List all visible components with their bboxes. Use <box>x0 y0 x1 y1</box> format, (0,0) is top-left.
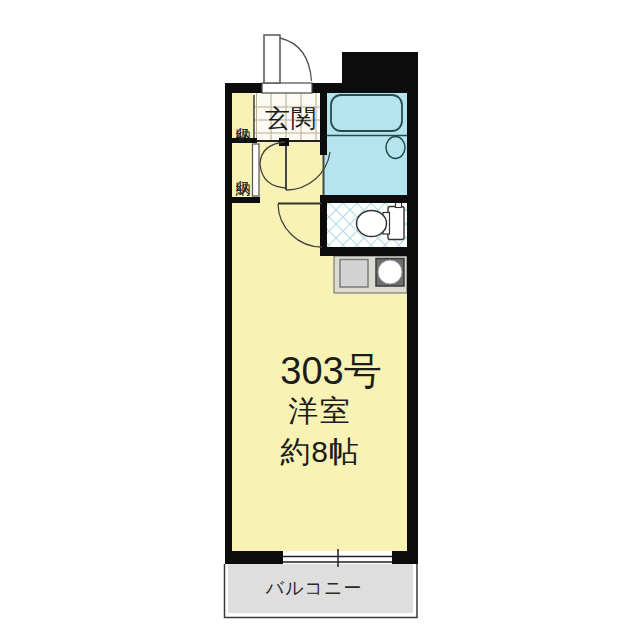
wall-bottom-right <box>392 551 418 564</box>
entrance-threshold <box>262 83 312 93</box>
floorplan-drawing <box>0 0 640 640</box>
wall-bottom-left <box>225 551 283 564</box>
wall-toilet-bottom <box>320 247 407 256</box>
entrance-label: 玄関 <box>265 106 317 131</box>
storage-lower-door-panel <box>253 144 260 196</box>
entrance-door-leaf <box>264 35 280 83</box>
wall-block-top-right <box>342 52 418 93</box>
toilet-room <box>322 201 407 249</box>
room-area-label: 約8帖 <box>280 437 360 467</box>
toilet-flush-knob-icon <box>396 203 402 208</box>
storage-upper-label: 収納 <box>235 115 251 117</box>
washbasin-icon <box>386 137 405 159</box>
storage-lower-label: 収納 <box>235 168 251 170</box>
kitchen <box>334 256 407 293</box>
stove-burner-icon <box>378 260 402 284</box>
wall-bath-toilet-divider <box>320 195 407 203</box>
wall-storage-lower-bottom <box>225 197 260 203</box>
room-type-label: 洋室 <box>288 396 352 426</box>
wall-bathroom-left <box>320 91 327 155</box>
unit-number-label: 303号 <box>280 352 381 390</box>
toilet-bowl-icon <box>357 211 387 237</box>
entrance-door-swing-arc <box>280 38 312 81</box>
wall-storage-upper-bottom <box>225 138 257 143</box>
bathroom <box>323 91 407 196</box>
wall-left <box>225 83 232 564</box>
floorplan-page: 玄関 収納 収納 303号 洋室 約8帖 バルコニー <box>0 0 640 640</box>
kitchen-sink-icon <box>340 260 368 288</box>
wall-right <box>407 52 418 564</box>
bathtub-icon <box>331 95 402 131</box>
balcony-label: バルコニー <box>266 579 363 597</box>
toilet-tank-icon <box>388 207 404 240</box>
